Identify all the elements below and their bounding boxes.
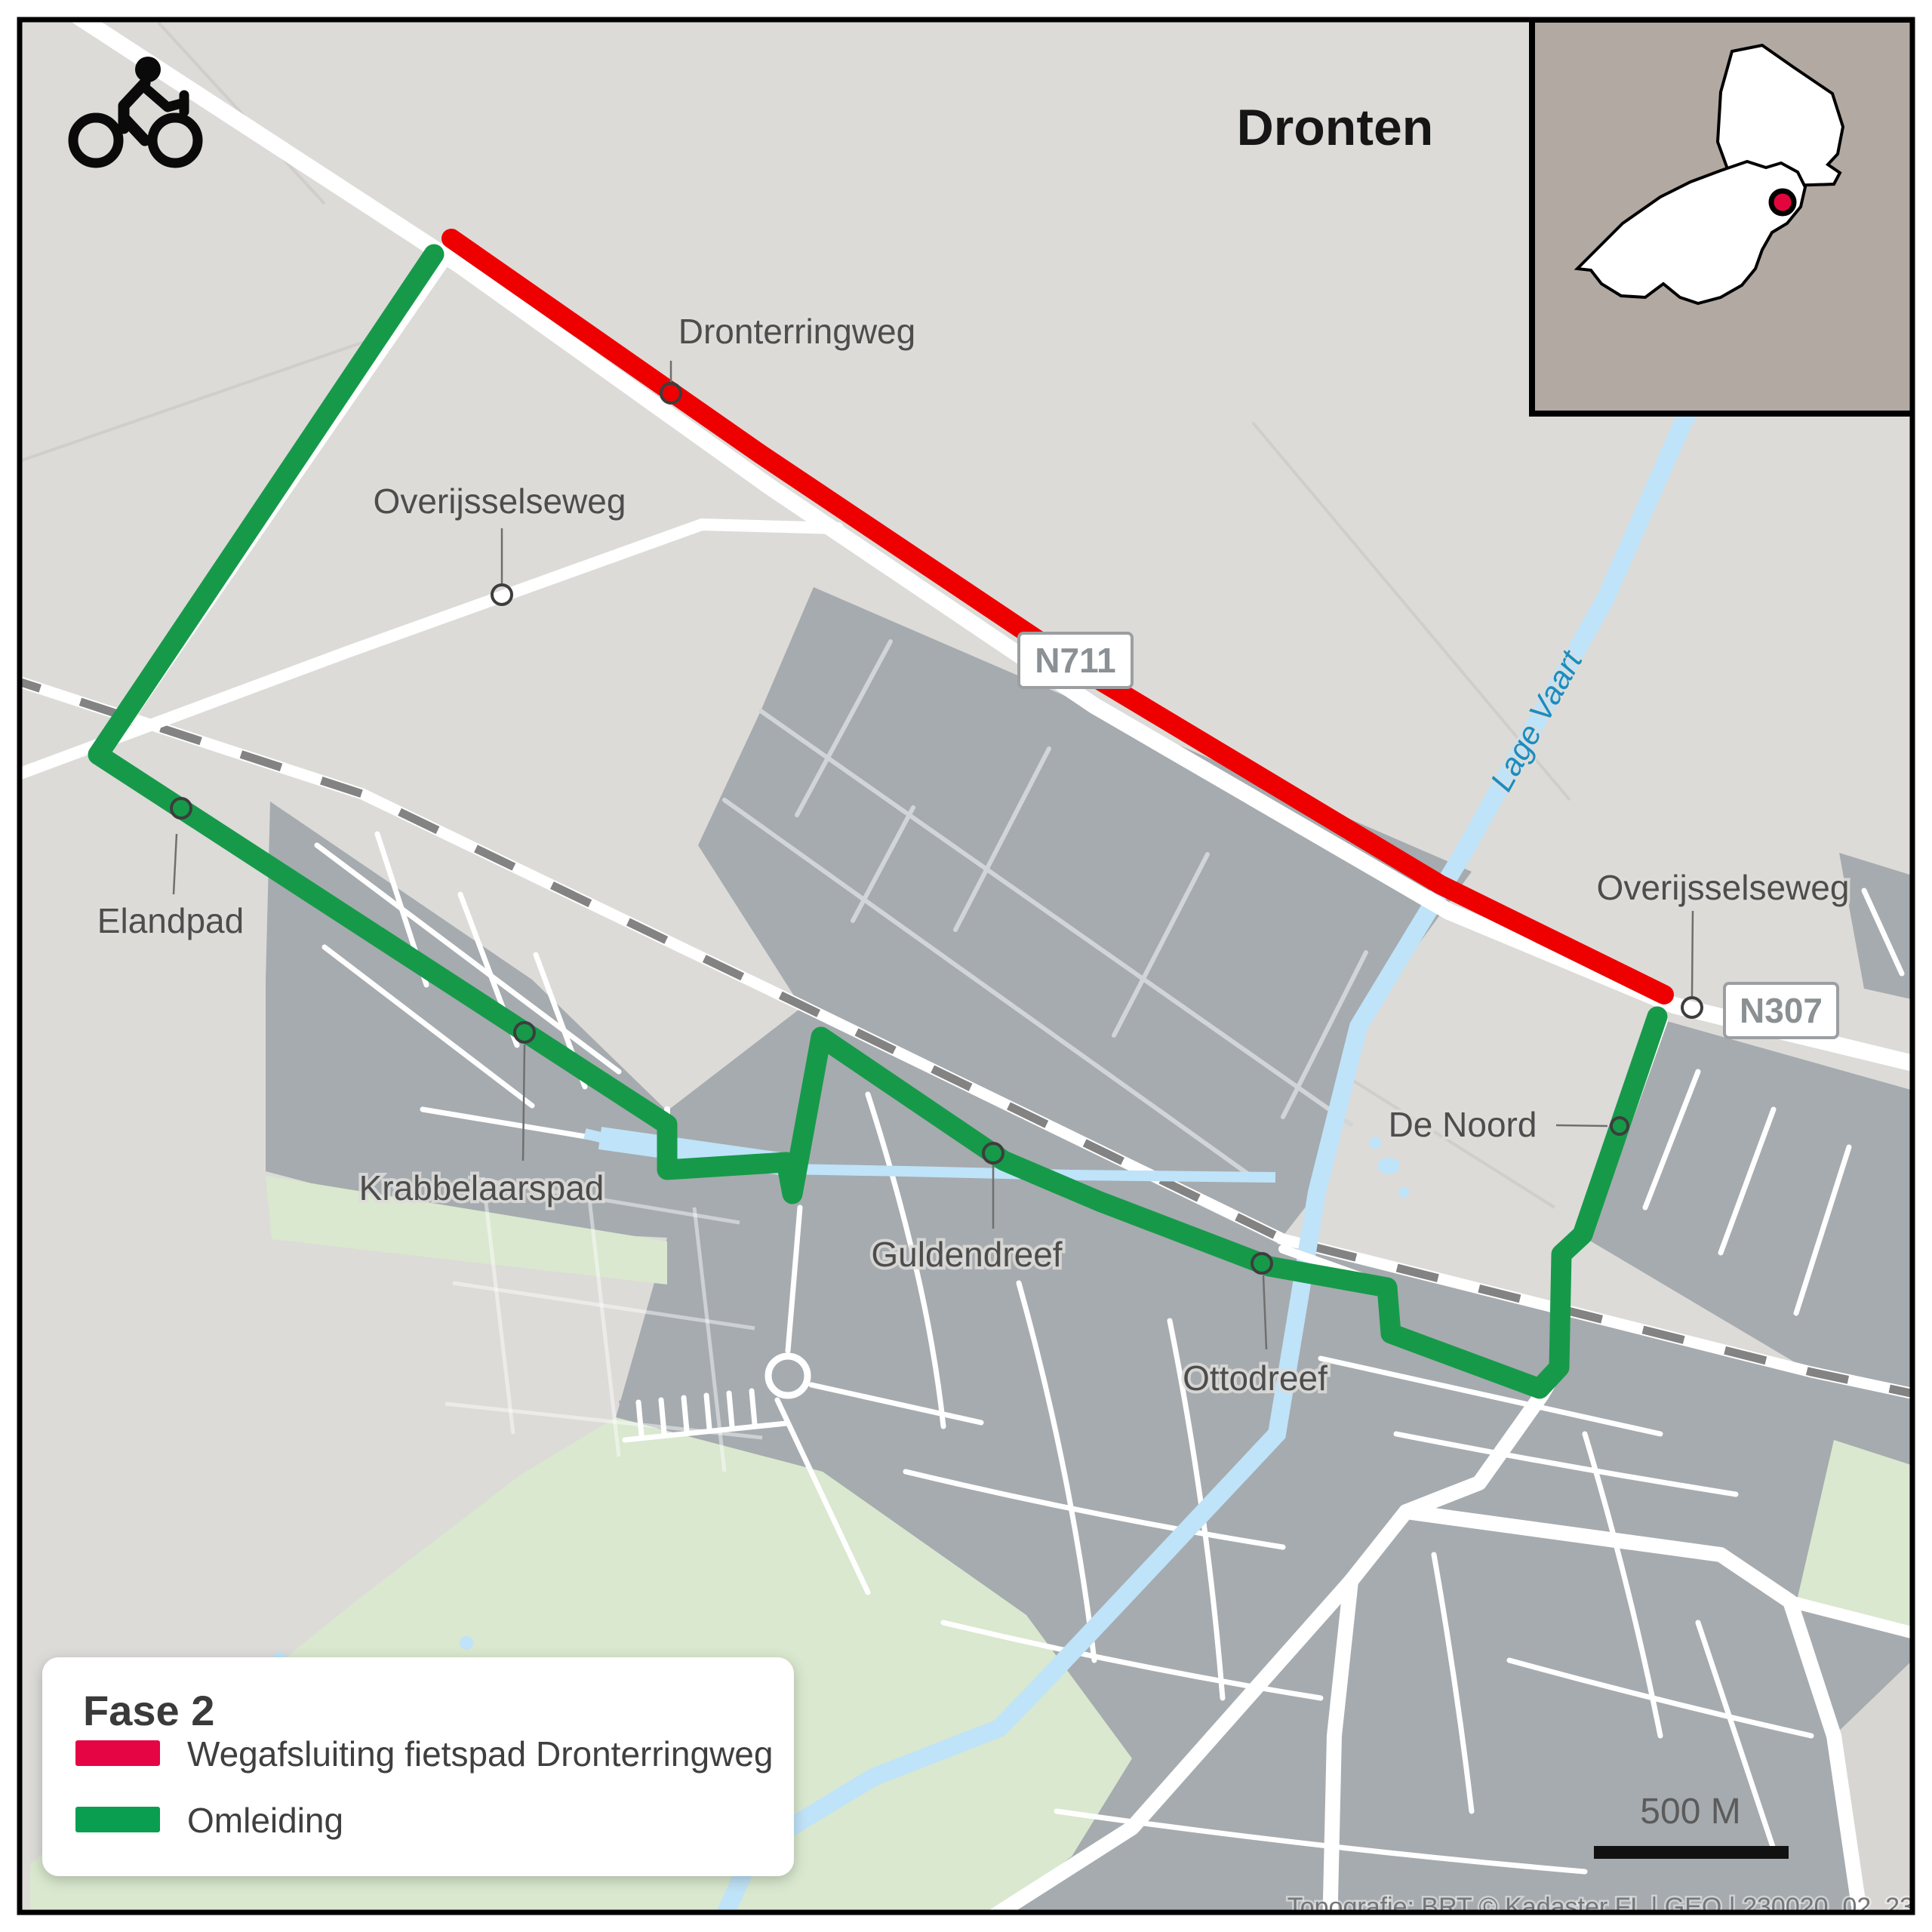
legend-title: Fase 2 <box>83 1687 214 1734</box>
label-overijsselseweg-west: Overijsselseweg <box>374 481 626 521</box>
scale-label: 500 M <box>1640 1792 1740 1832</box>
legend-swatch-detour <box>75 1807 160 1832</box>
pond <box>1369 1137 1381 1149</box>
map-canvas: Dronterringweg Overijsselseweg Elandpad … <box>0 0 1932 1932</box>
legend-label-detour: Omleiding <box>187 1801 343 1840</box>
attribution: Topografie: BRT © Kadaster FL | GEO | 23… <box>1287 1893 1914 1921</box>
label-de-noord: De Noord <box>1389 1105 1537 1144</box>
legend-swatch-closure <box>75 1740 160 1766</box>
label-overijsselseweg-east: Overijsselseweg <box>1597 868 1850 907</box>
label-elandpad: Elandpad <box>97 901 244 940</box>
pond <box>1398 1187 1409 1198</box>
label-dronterringweg: Dronterringweg <box>678 312 915 351</box>
badge-n307: N307 <box>1724 983 1838 1038</box>
page-title: Dronten <box>1237 99 1434 156</box>
badge-n711: N711 <box>1019 633 1132 688</box>
label-krabbelaarspad: Krabbelaarspad <box>359 1168 605 1207</box>
legend: Fase 2 Wegafsluiting fietspad Dronterrin… <box>42 1657 794 1876</box>
label-guldendreef: Guldendreef <box>871 1235 1062 1274</box>
svg-text:N711: N711 <box>1035 641 1115 680</box>
legend-label-closure: Wegafsluiting fietspad Dronterringweg <box>187 1734 773 1774</box>
scale-bar-rule <box>1594 1846 1789 1859</box>
inset-location-dot <box>1771 191 1794 214</box>
pond <box>460 1636 473 1650</box>
pond <box>1377 1158 1400 1174</box>
locator-inset-map <box>1532 20 1926 414</box>
svg-text:N307: N307 <box>1740 991 1823 1030</box>
label-ottodreef: Ottodreef <box>1183 1358 1327 1398</box>
